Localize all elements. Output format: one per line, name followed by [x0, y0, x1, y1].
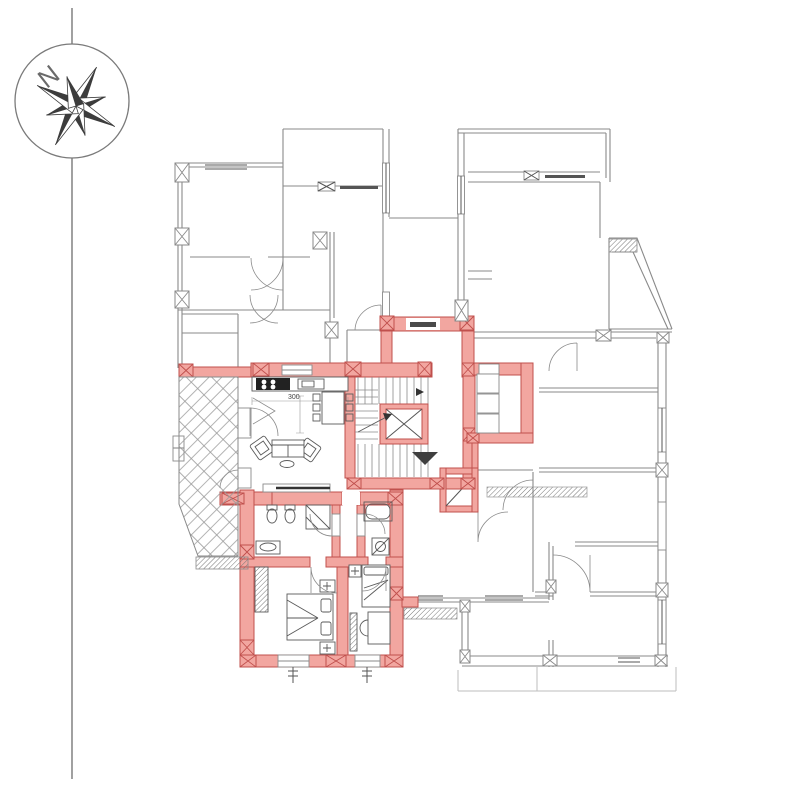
kitchen-dimension-label: 300: [288, 394, 300, 401]
pantry-wedge: [253, 398, 275, 424]
kitchen-counter: [252, 377, 348, 391]
floor-plan-page: N: [0, 0, 800, 785]
sofa-group: [249, 435, 321, 467]
sill-marks: [288, 667, 372, 683]
walkline-arrow: [416, 388, 424, 396]
tv-sideboard: [263, 484, 330, 492]
planter-hatch-strip: [404, 608, 457, 619]
compass-rose-icon: N: [15, 44, 129, 158]
wardrobe-icon: [255, 567, 268, 612]
elevator-shaft-icon: [380, 404, 428, 444]
loggia-railing-hatch: [487, 487, 587, 497]
bathroom-2-fixtures: [364, 502, 392, 555]
bathroom-1-fixtures: [256, 505, 330, 554]
entrance-marker-icon: [412, 452, 438, 465]
radiator-icon: [350, 613, 357, 651]
terrace-railing-hatch: [196, 557, 248, 569]
terrace: [179, 377, 248, 569]
balcony-railing-hatch: [609, 239, 637, 252]
floor-plan-svg: N: [0, 0, 800, 785]
storage-closets: [477, 374, 499, 433]
landing-window-dark: [410, 322, 436, 327]
bedroom-1-furniture: [255, 567, 335, 654]
toilet-icon: [267, 509, 277, 523]
desk-chair-icon: [360, 620, 368, 636]
desk-icon: [368, 612, 390, 644]
lower-balcony-outline: [458, 667, 676, 691]
bidet-icon: [285, 509, 295, 523]
